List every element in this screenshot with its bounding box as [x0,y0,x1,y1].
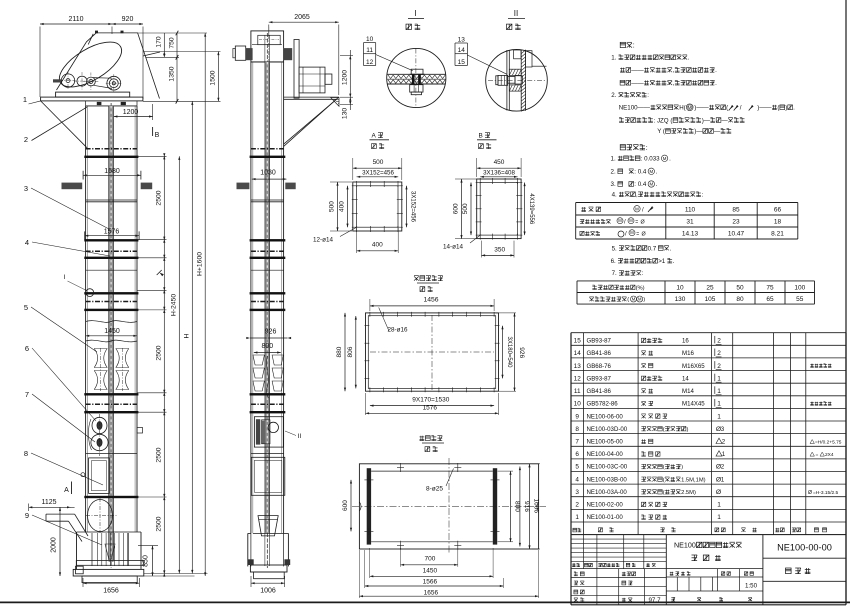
svg-text:3X180=540: 3X180=540 [506,337,512,369]
svg-text:M: M [630,230,634,235]
svg-text:2110: 2110 [68,16,83,23]
svg-text:(: ( [663,465,665,471]
svg-text:50: 50 [736,284,744,291]
svg-text:926: 926 [265,329,277,336]
svg-text:1: 1 [575,514,579,521]
svg-text:II: II [298,433,302,440]
svg-text:NE100-06-00: NE100-06-00 [587,413,624,420]
svg-text:2: 2 [717,350,721,357]
svg-text:A: A [64,487,69,494]
svg-text:)—: )— [702,117,711,124]
svg-text:1.: 1. [611,156,616,163]
svg-text:10: 10 [366,36,374,43]
svg-text:6: 6 [25,344,29,353]
svg-text:.: . [715,80,717,87]
svg-text:1576: 1576 [104,228,120,235]
svg-text:2: 2 [575,502,579,509]
svg-text:2065: 2065 [294,14,310,21]
svg-text:.: . [670,245,672,252]
svg-text:.: . [715,67,717,74]
svg-text:130: 130 [675,296,686,303]
svg-text:NE100-03D-00: NE100-03D-00 [587,426,628,433]
svg-text:7: 7 [575,439,579,446]
svg-text:NE100-00-00: NE100-00-00 [777,543,832,553]
svg-text::: : [633,43,635,50]
svg-text:2000: 2000 [51,537,58,553]
svg-text:850: 850 [143,555,150,567]
svg-text:14-ø14: 14-ø14 [443,244,463,251]
svg-text:400: 400 [339,201,346,212]
svg-text:M: M [629,218,633,223]
svg-text:80: 80 [736,296,744,303]
svg-text:5.: 5. [612,245,617,252]
svg-text:(: ( [663,490,665,496]
svg-text:6: 6 [575,451,579,458]
svg-text:920: 920 [122,16,134,23]
svg-text:1450: 1450 [423,567,438,574]
svg-text:): ) [687,427,689,433]
svg-text:6.: 6. [611,258,616,265]
svg-text:3: 3 [721,426,725,433]
svg-text:1200: 1200 [342,70,349,85]
svg-text:75: 75 [766,284,774,291]
svg-text:1: 1 [721,476,725,483]
svg-text:2X4: 2X4 [825,452,834,458]
svg-text:10: 10 [574,401,582,408]
svg-text:25: 25 [706,284,714,291]
svg-text:(%): (%) [636,285,645,291]
svg-text:15: 15 [574,338,582,345]
svg-text:M: M [663,156,667,161]
svg-text:1450: 1450 [104,328,120,335]
svg-text:)——: )—— [757,105,772,112]
svg-text:10: 10 [676,284,684,291]
svg-text:=H/0.2+5.75: =H/0.2+5.75 [815,440,842,446]
svg-text:B: B [155,132,160,139]
svg-text:M16X65: M16X65 [682,363,705,370]
svg-text:H-2450: H-2450 [171,294,178,317]
svg-text:14: 14 [682,375,689,382]
svg-text:1.5M,1M): 1.5M,1M) [681,477,706,483]
svg-text:1200: 1200 [123,109,139,116]
svg-text:110: 110 [685,207,696,214]
svg-text::: : [647,92,649,99]
svg-text:GB41-86: GB41-86 [587,388,612,395]
svg-text:H(: H( [679,105,686,112]
svg-text:1: 1 [717,413,721,420]
svg-text:12: 12 [366,59,374,66]
svg-text:9: 9 [25,511,29,520]
svg-text:1350: 1350 [168,66,175,81]
svg-text:880: 880 [336,346,343,357]
svg-text:2.5M): 2.5M) [681,490,696,496]
svg-text:(: ( [627,297,629,303]
svg-text:/: / [740,105,742,112]
svg-text:B: B [479,133,483,140]
svg-text:M: M [618,218,622,223]
svg-text:=H-3.15/2.5: =H-3.15/2.5 [813,490,839,496]
svg-text:2500: 2500 [156,190,163,205]
svg-text:GB5782-86: GB5782-86 [587,401,619,408]
svg-text:0.7: 0.7 [648,245,657,252]
svg-text:): ) [785,105,787,112]
svg-text:.: . [793,105,795,112]
svg-text:800: 800 [261,343,273,350]
svg-text:28-ø16: 28-ø16 [388,327,408,334]
svg-text:13: 13 [574,363,582,370]
svg-text:.: . [673,258,675,265]
svg-text:130: 130 [342,108,349,120]
svg-text:97.7: 97.7 [648,597,661,604]
svg-text:12: 12 [574,375,582,382]
svg-text:M16: M16 [682,350,694,357]
svg-text:): ) [681,465,683,471]
svg-text:1656: 1656 [424,589,439,596]
svg-text:2.: 2. [611,169,616,176]
svg-text:3: 3 [24,184,28,193]
svg-text:2: 2 [722,439,726,446]
svg-text:,: , [673,67,675,74]
svg-text:)—: )— [694,128,703,135]
svg-text:14: 14 [458,47,466,54]
svg-text:1: 1 [717,388,721,395]
svg-text:Y (: Y ( [657,128,666,135]
svg-text:1680: 1680 [104,168,120,175]
svg-text:1500: 1500 [210,70,217,85]
svg-text:2500: 2500 [156,516,163,531]
svg-text:350: 350 [494,247,505,254]
svg-text:12-ø14: 12-ø14 [313,237,333,244]
svg-text:,: , [673,80,675,87]
svg-text:66: 66 [774,207,782,214]
svg-text:4: 4 [25,238,29,247]
svg-text:7: 7 [25,390,29,399]
svg-text:.: . [688,55,690,62]
svg-text:I: I [64,274,66,281]
svg-text::: : [702,192,704,199]
svg-text:2.: 2. [611,92,616,99]
svg-text:NE100——: NE100—— [619,105,651,112]
svg-text:9: 9 [575,413,579,420]
svg-text:2: 2 [24,135,28,144]
svg-text:=: = [636,231,639,237]
svg-text:Ø: Ø [808,490,812,496]
svg-text:——: —— [631,67,644,74]
svg-text:11: 11 [366,47,373,54]
svg-text:4X139=556: 4X139=556 [528,193,534,225]
svg-text:1030: 1030 [260,170,276,177]
svg-text:I: I [414,9,416,18]
svg-text:M14: M14 [682,388,694,395]
svg-text:1566: 1566 [423,579,438,586]
svg-text:11: 11 [574,388,581,395]
svg-text:13: 13 [458,36,466,43]
svg-text:18: 18 [774,219,782,226]
svg-text:H: H [184,333,191,338]
svg-text:9X170=1530: 9X170=1530 [412,396,449,403]
svg-text:1: 1 [717,401,721,408]
svg-text:1: 1 [23,95,27,104]
svg-text:14: 14 [574,350,582,357]
svg-text:800: 800 [513,501,520,512]
svg-text:1006: 1006 [260,588,276,595]
svg-text:GB41-86: GB41-86 [587,350,612,357]
svg-text:: 0.033: : 0.033 [641,156,660,163]
svg-text:2: 2 [717,363,721,370]
svg-text:1125: 1125 [41,499,56,506]
svg-text:: 0.4: : 0.4 [634,181,647,188]
svg-text:NE100-01-00: NE100-01-00 [587,514,624,521]
svg-text:916: 916 [523,501,530,512]
svg-text:NE100-05-00: NE100-05-00 [587,439,624,446]
svg-text:600: 600 [342,500,349,511]
svg-text:7.: 7. [612,270,617,277]
svg-text:1: 1 [717,375,721,382]
svg-text:700: 700 [424,556,435,563]
svg-text:5: 5 [24,303,28,312]
svg-text:II: II [514,9,518,18]
svg-text:1.: 1. [611,55,616,62]
svg-text:400: 400 [372,242,383,249]
svg-text:)——: )—— [694,105,709,112]
svg-text:16: 16 [682,338,689,345]
svg-text:—: — [714,128,721,135]
svg-text:926: 926 [518,347,525,358]
svg-text:4: 4 [575,476,579,483]
svg-text:GB93-87: GB93-87 [587,338,612,345]
svg-text:23: 23 [732,219,740,226]
svg-text:8: 8 [575,426,579,433]
svg-text:NE100: NE100 [674,542,696,550]
svg-text:NE100-03C-00: NE100-03C-00 [587,464,628,471]
svg-text:65: 65 [766,296,774,303]
svg-text:M: M [649,182,653,187]
svg-text:=: = [816,453,819,458]
svg-text:100: 100 [794,284,805,291]
svg-text:(: ( [663,427,665,433]
svg-text:GB93-87: GB93-87 [587,375,612,382]
svg-text:NE100-02-00: NE100-02-00 [587,502,624,509]
svg-text:2500: 2500 [156,345,163,360]
svg-text:450: 450 [494,159,505,166]
svg-text:2500: 2500 [156,447,163,462]
svg-text:14.13: 14.13 [682,231,699,238]
svg-text:GB68-76: GB68-76 [587,363,612,370]
svg-text:M: M [635,206,639,211]
svg-text:1: 1 [717,514,721,521]
svg-text:M14X45: M14X45 [682,401,705,408]
svg-text:.: . [656,169,658,176]
svg-text:85: 85 [732,207,740,214]
svg-text:2: 2 [721,464,725,471]
svg-text:4.: 4. [612,192,617,199]
svg-text:8: 8 [24,449,28,458]
svg-text:105: 105 [705,296,716,303]
svg-text:—: — [722,117,729,124]
svg-text:55: 55 [796,296,804,303]
svg-text:NE100-03A-00: NE100-03A-00 [587,489,628,496]
svg-text:1: 1 [722,451,726,458]
svg-text::: : [642,270,644,277]
svg-text:(: ( [663,477,665,483]
svg-text:1656: 1656 [103,588,119,595]
svg-text:: 0.4: : 0.4 [634,169,647,176]
svg-text::: : [646,145,648,152]
svg-text:3.: 3. [611,181,616,188]
svg-text:): ) [643,297,645,303]
svg-text:=: = [635,219,638,225]
svg-text:.: . [656,181,658,188]
svg-text:>1: >1 [658,258,666,265]
svg-text:3X152=456: 3X152=456 [410,191,416,223]
svg-text:600: 600 [453,203,460,214]
svg-text:M: M [649,169,653,174]
svg-text:750: 750 [168,37,175,49]
svg-text:500: 500 [462,203,469,214]
svg-text:3X152=456: 3X152=456 [362,169,394,176]
svg-text:806: 806 [347,346,354,357]
svg-text:H+1600: H+1600 [197,252,204,276]
svg-text:: JZQ (: : JZQ ( [654,117,674,124]
svg-text:8-ø25: 8-ø25 [426,486,443,493]
svg-text:NE100-03B-00: NE100-03B-00 [587,476,628,483]
svg-text:3: 3 [575,489,579,496]
svg-text:1576: 1576 [423,405,438,412]
svg-text:10.47: 10.47 [728,231,745,238]
svg-text:5: 5 [575,464,579,471]
svg-text:1006: 1006 [532,499,539,514]
svg-text:.: . [669,156,671,163]
svg-text:——: —— [631,80,644,87]
svg-text:1:50: 1:50 [745,583,758,590]
svg-text:Ø: Ø [716,489,722,496]
svg-text:15: 15 [458,59,466,66]
svg-text:M: M [632,297,636,302]
svg-text:3X136=408: 3X136=408 [483,169,515,176]
svg-text:31: 31 [686,219,694,226]
svg-text:8.21: 8.21 [771,231,784,238]
svg-text:1456: 1456 [423,297,438,304]
svg-text:M: M [638,297,642,302]
svg-text:,: , [636,192,638,199]
svg-text:NE100-04-00: NE100-04-00 [587,451,624,458]
svg-text:500: 500 [373,159,384,166]
svg-text:A: A [372,133,377,140]
svg-text:170: 170 [156,36,163,48]
svg-text:2: 2 [717,338,721,345]
svg-text:1: 1 [717,502,721,509]
svg-text:500: 500 [329,201,336,212]
